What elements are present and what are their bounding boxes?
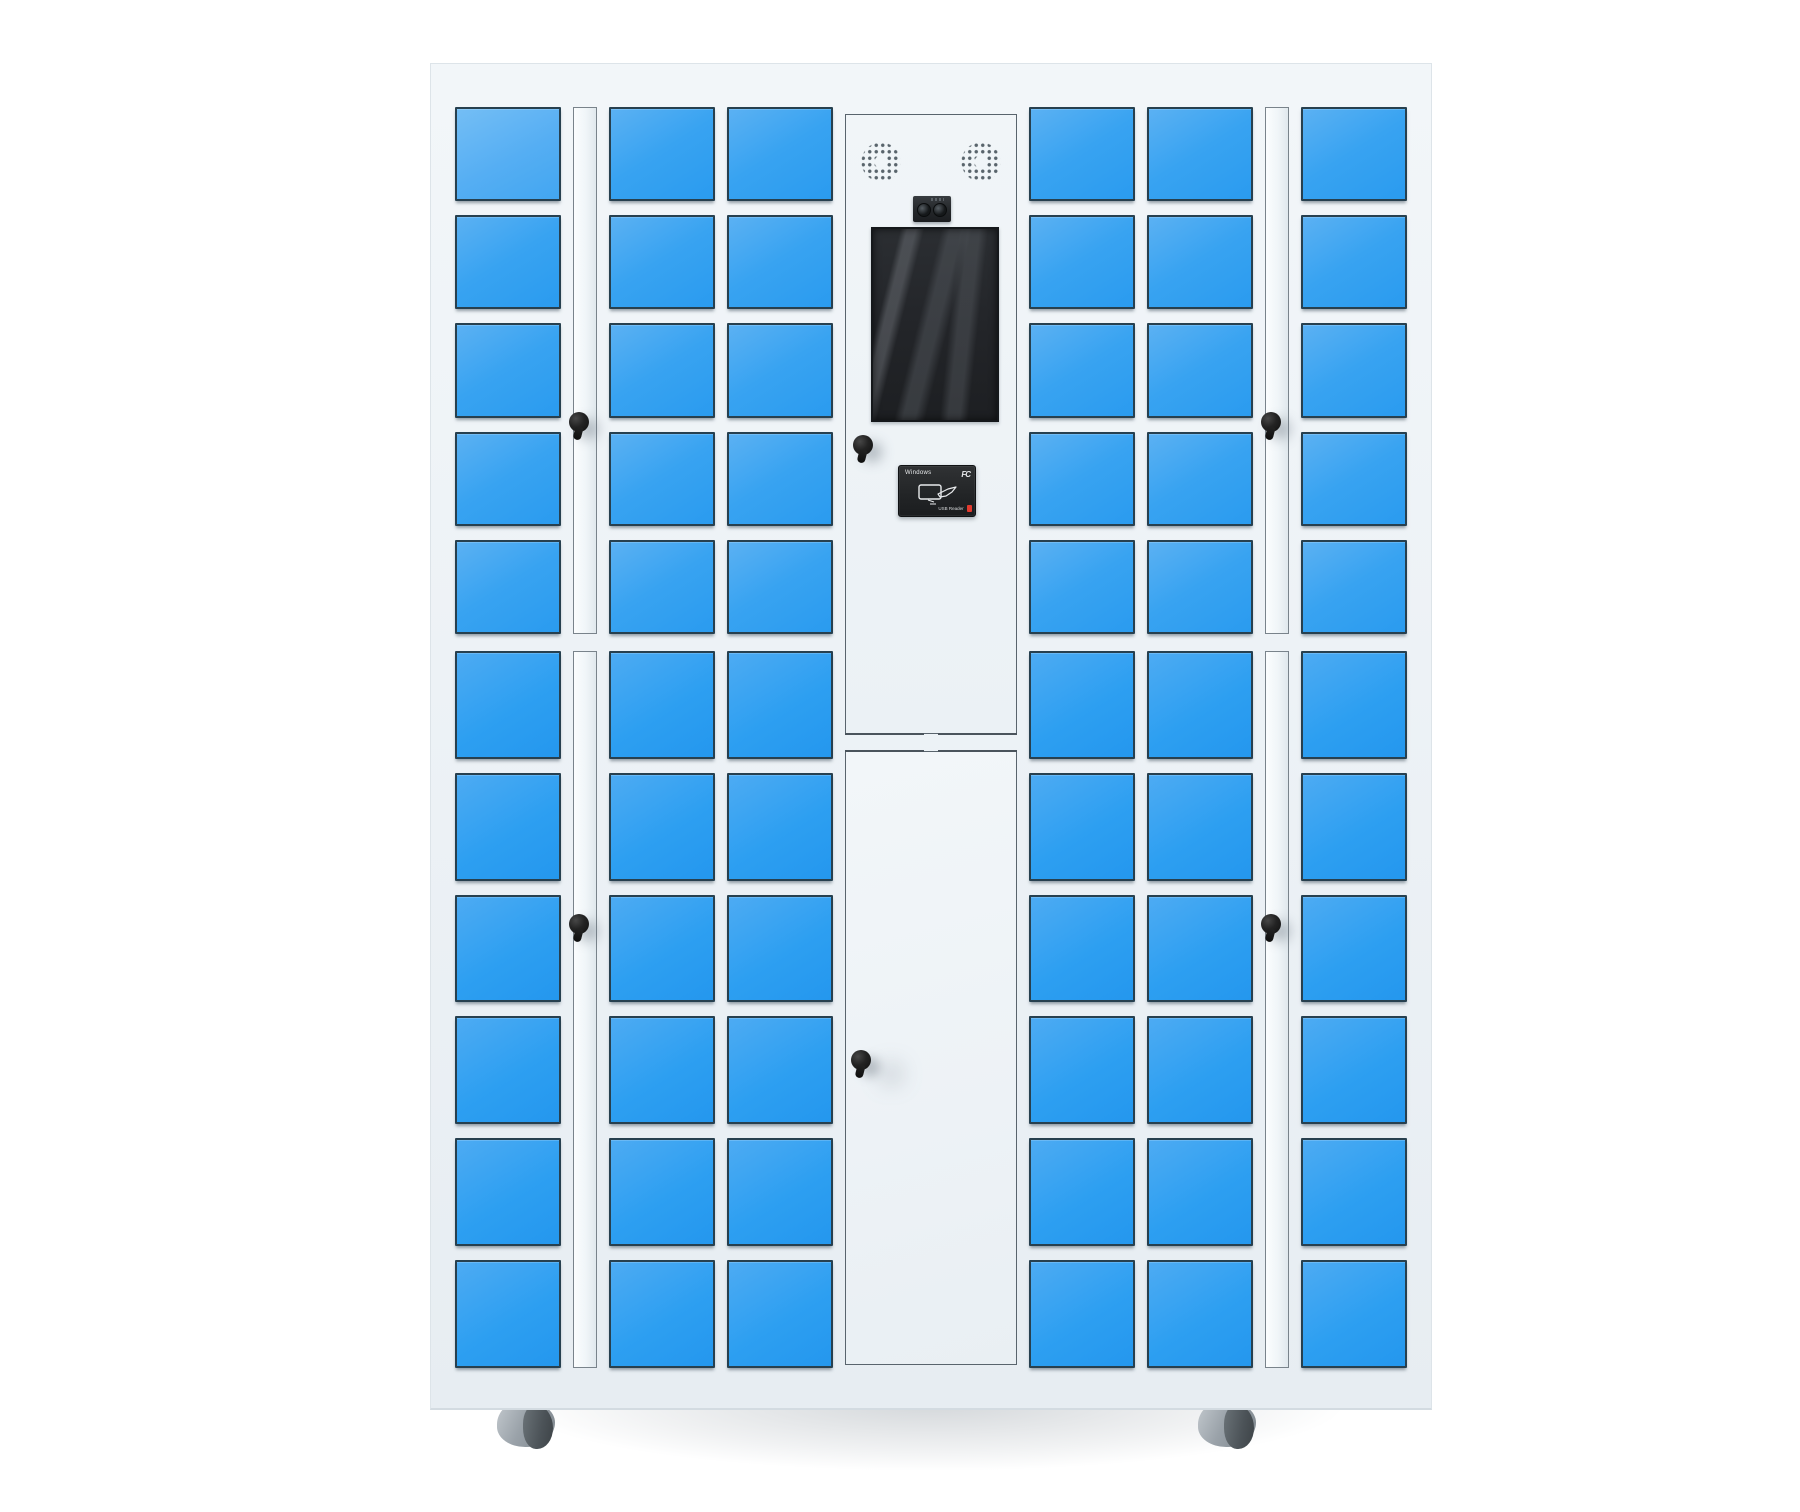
speaker-grille-left-icon <box>859 140 903 184</box>
door-column-6 <box>1301 107 1407 1408</box>
lock-strip-left <box>573 107 597 1408</box>
central-door-key-lock[interactable] <box>851 1050 873 1080</box>
locker-door[interactable] <box>1147 215 1253 309</box>
door-section-lower <box>609 651 715 1368</box>
door-section-lower <box>1029 651 1135 1368</box>
locker-door[interactable] <box>1029 215 1135 309</box>
locker-door[interactable] <box>455 1260 561 1368</box>
locker-door[interactable] <box>1301 895 1407 1003</box>
locker-door[interactable] <box>609 107 715 201</box>
locker-door[interactable] <box>1029 773 1135 881</box>
red-indicator <box>967 505 972 512</box>
locker-door[interactable] <box>727 1016 833 1124</box>
key-lock[interactable] <box>1261 914 1283 944</box>
locker-door[interactable] <box>727 651 833 759</box>
locker-door[interactable] <box>727 432 833 526</box>
locker-door[interactable] <box>1029 540 1135 634</box>
locker-door[interactable] <box>1147 651 1253 759</box>
locker-door[interactable] <box>455 1138 561 1246</box>
locker-door[interactable] <box>1029 1016 1135 1124</box>
floor-shadow <box>420 1404 1442 1490</box>
door-section-upper <box>1029 107 1135 634</box>
locker-door[interactable] <box>1301 1138 1407 1246</box>
locker-door[interactable] <box>1301 773 1407 881</box>
card-reader-brand-label: Windows <box>905 470 931 476</box>
door-section-lower <box>455 651 561 1368</box>
locker-door[interactable] <box>609 215 715 309</box>
locker-door[interactable] <box>727 895 833 1003</box>
locker-door[interactable] <box>609 323 715 417</box>
lock-strip-left-lower <box>573 651 597 1368</box>
locker-door[interactable] <box>455 1016 561 1124</box>
usb-reader-label: USB Reader <box>938 506 963 511</box>
door-section-lower <box>1147 651 1253 1368</box>
door-column-3 <box>727 107 833 1408</box>
camera-led-row <box>931 198 944 201</box>
locker-door[interactable] <box>1147 1138 1253 1246</box>
door-section-lower <box>727 651 833 1368</box>
locker-door[interactable] <box>1301 651 1407 759</box>
locker-door[interactable] <box>1029 432 1135 526</box>
swipe-card-icon <box>918 480 960 506</box>
door-column-5 <box>1147 107 1253 1408</box>
door-column-1 <box>455 107 561 1408</box>
locker-door[interactable] <box>1301 107 1407 201</box>
key-lock[interactable] <box>569 412 591 442</box>
door-section-upper <box>455 107 561 634</box>
locker-door[interactable] <box>1029 895 1135 1003</box>
locker-door[interactable] <box>1147 323 1253 417</box>
locker-door[interactable] <box>455 323 561 417</box>
locker-door[interactable] <box>727 323 833 417</box>
key-lock[interactable] <box>1261 412 1283 442</box>
locker-door[interactable] <box>1029 323 1135 417</box>
door-section-upper <box>1301 107 1407 634</box>
door-section-upper <box>727 107 833 634</box>
touch-screen[interactable] <box>871 227 999 422</box>
locker-door[interactable] <box>609 1138 715 1246</box>
locker-door[interactable] <box>1147 773 1253 881</box>
product-photo-stage: Windows FC USB Reader <box>0 0 1800 1512</box>
lock-strip-left-upper <box>573 107 597 634</box>
lock-strip-right-lower <box>1265 651 1289 1368</box>
locker-door[interactable] <box>1301 215 1407 309</box>
locker-door[interactable] <box>455 540 561 634</box>
panel-key-lock[interactable] <box>853 435 875 465</box>
door-section-upper <box>609 107 715 634</box>
locker-door[interactable] <box>609 540 715 634</box>
control-panel: Windows FC USB Reader <box>845 114 1017 734</box>
door-column-4 <box>1029 107 1135 1408</box>
locker-door[interactable] <box>727 1138 833 1246</box>
camera-lens-icon <box>917 203 931 217</box>
door-section-upper <box>1147 107 1253 634</box>
central-service-door[interactable] <box>845 751 1017 1365</box>
locker-door[interactable] <box>1029 107 1135 201</box>
locker-door[interactable] <box>1029 1260 1135 1368</box>
locker-door[interactable] <box>727 215 833 309</box>
locker-door[interactable] <box>609 895 715 1003</box>
locker-door[interactable] <box>455 215 561 309</box>
locker-door[interactable] <box>455 773 561 881</box>
locker-door[interactable] <box>609 651 715 759</box>
locker-door[interactable] <box>727 540 833 634</box>
locker-door[interactable] <box>1147 895 1253 1003</box>
lock-strip-right <box>1265 107 1289 1408</box>
locker-door[interactable] <box>1029 1138 1135 1246</box>
locker-door[interactable] <box>1147 107 1253 201</box>
locker-door[interactable] <box>1029 651 1135 759</box>
locker-door[interactable] <box>455 107 561 201</box>
locker-door[interactable] <box>727 1260 833 1368</box>
locker-door[interactable] <box>1301 432 1407 526</box>
key-lock[interactable] <box>569 914 591 944</box>
locker-door[interactable] <box>1147 1016 1253 1124</box>
lock-strip-right-upper <box>1265 107 1289 634</box>
locker-door[interactable] <box>1301 540 1407 634</box>
door-section-lower <box>1301 651 1407 1368</box>
camera-module <box>913 196 951 222</box>
locker-door[interactable] <box>455 895 561 1003</box>
camera-lens-icon <box>933 203 947 217</box>
locker-door[interactable] <box>1147 432 1253 526</box>
rfid-card-reader[interactable]: Windows FC USB Reader <box>898 465 976 517</box>
locker-door[interactable] <box>1301 1016 1407 1124</box>
locker-door[interactable] <box>1301 1260 1407 1368</box>
locker-door[interactable] <box>727 773 833 881</box>
locker-cabinet: Windows FC USB Reader <box>430 63 1432 1410</box>
locker-door[interactable] <box>609 1260 715 1368</box>
fcc-logo: FC <box>961 470 970 479</box>
locker-door[interactable] <box>727 107 833 201</box>
speaker-grille-right-icon <box>959 140 1003 184</box>
door-column-2 <box>609 107 715 1408</box>
locker-door[interactable] <box>1301 323 1407 417</box>
locker-door[interactable] <box>455 432 561 526</box>
locker-door[interactable] <box>609 1016 715 1124</box>
locker-door[interactable] <box>609 773 715 881</box>
locker-door[interactable] <box>1147 540 1253 634</box>
locker-door[interactable] <box>455 651 561 759</box>
control-column: Windows FC USB Reader <box>845 107 1017 1408</box>
locker-door[interactable] <box>1147 1260 1253 1368</box>
locker-door[interactable] <box>609 432 715 526</box>
